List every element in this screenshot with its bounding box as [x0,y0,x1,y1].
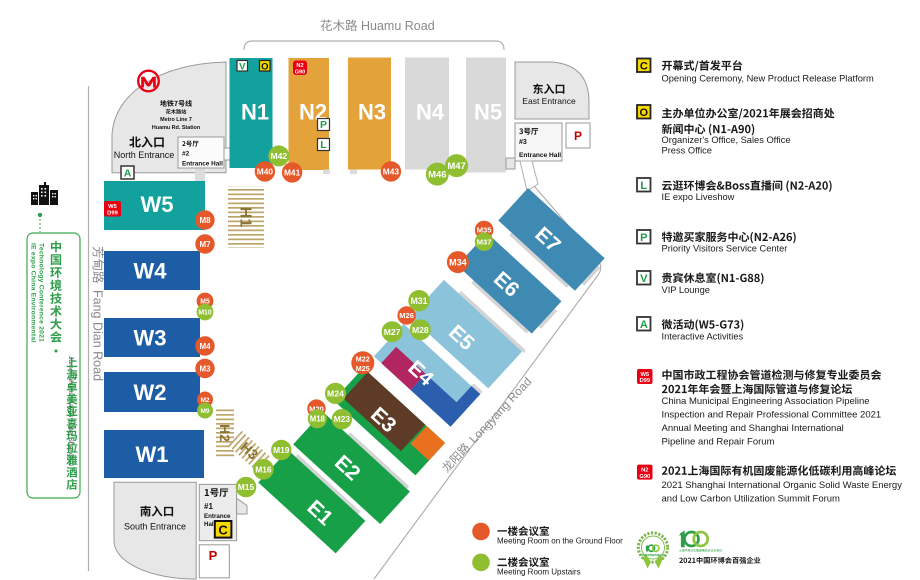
svg-text:H1: H1 [237,207,254,228]
svg-text:M42: M42 [270,151,287,161]
svg-text:M46: M46 [428,168,446,179]
svg-text:M10: M10 [198,309,212,316]
svg-text:H2: H2 [217,424,233,442]
svg-text:M40: M40 [257,166,274,176]
svg-text:M19: M19 [273,445,290,455]
svg-text:Entrance Hall: Entrance Hall [519,152,561,159]
svg-text:N2: N2 [641,467,648,473]
svg-text:Pipeline and Repair Forum: Pipeline and Repair Forum [662,437,775,448]
svg-text:M22: M22 [356,355,370,364]
svg-text:N2: N2 [296,63,303,69]
svg-text:Meeting Room on the Ground Flo: Meeting Room on the Ground Floor [497,537,623,546]
svg-text:Interactive Activities: Interactive Activities [662,332,744,342]
svg-text:D99: D99 [107,211,118,217]
svg-text:North Entrance: North Entrance [114,150,175,160]
svg-text:#1: #1 [204,502,213,511]
svg-text:Meeting Room Upstairs: Meeting Room Upstairs [497,568,581,577]
svg-text:M23: M23 [334,414,351,424]
svg-text:P: P [574,129,582,143]
svg-text:M26: M26 [399,311,414,320]
svg-text:Metro Line 7: Metro Line 7 [160,117,192,123]
svg-text:M25: M25 [356,364,370,373]
svg-text:M15: M15 [238,482,255,492]
svg-text:Annual Meeting and Shanghai In: Annual Meeting and Shanghai Internationa… [662,423,844,434]
svg-text:A: A [124,168,132,180]
svg-text:M16: M16 [255,464,272,474]
svg-text:P: P [320,119,327,131]
svg-text:G90: G90 [295,70,306,76]
svg-text:IE expo China Environmental: IE expo China Environmental [30,243,37,342]
svg-text:Entrance: Entrance [204,513,231,520]
svg-text:M31: M31 [410,296,427,306]
svg-text:China Municipal Engineering As: China Municipal Engineering Association … [662,396,870,407]
svg-text:L: L [320,139,327,151]
svg-text:VIP Lounge: VIP Lounge [662,285,710,295]
svg-text:M3: M3 [199,364,211,373]
svg-text:M47: M47 [447,160,465,171]
svg-text:#3: #3 [519,139,527,146]
svg-text:V: V [239,61,246,72]
svg-text:P: P [640,232,647,244]
svg-text:N5: N5 [474,100,502,125]
svg-text:L: L [640,180,647,192]
svg-text:W5: W5 [141,192,174,217]
svg-text:Opening Ceremony, New Product: Opening Ceremony, New Product Release Pl… [662,74,874,84]
svg-text:M18: M18 [310,415,326,424]
svg-text:M4: M4 [199,342,211,351]
svg-text:N4: N4 [416,100,445,125]
svg-text:Press Office: Press Office [662,145,712,155]
svg-text:O: O [640,107,649,119]
svg-text:M43: M43 [383,166,400,176]
svg-text:N3: N3 [358,100,386,125]
svg-text:W3: W3 [134,326,167,351]
svg-text:South Entrance: South Entrance [124,522,186,532]
svg-text:2021 Shanghai International Or: 2021 Shanghai International Organic Soli… [662,480,903,491]
svg-text:V: V [640,273,648,285]
svg-text:W5: W5 [108,204,117,210]
svg-text:M41: M41 [284,167,301,177]
svg-text:C: C [640,60,648,72]
svg-text:Inspection and Repair Professi: Inspection and Repair Professional Commi… [662,409,882,420]
svg-text:Organizer's Office, Sales Offi: Organizer's Office, Sales Office [662,135,791,145]
svg-text:M9: M9 [200,408,209,415]
svg-text:M24: M24 [327,389,344,399]
svg-text:W4: W4 [134,259,168,284]
svg-text:#2: #2 [182,151,190,158]
svg-text:Technology Conference 2021: Technology Conference 2021 [38,243,45,342]
svg-text:C: C [218,523,228,538]
svg-text:IE expo Liveshow: IE expo Liveshow [662,192,735,202]
svg-text:East Entrance: East Entrance [522,96,576,106]
svg-text:P: P [209,548,218,563]
svg-text:M27: M27 [384,327,401,337]
svg-text:M34: M34 [449,257,467,267]
svg-text:A: A [640,319,648,331]
svg-text:Huamu Rd. Station: Huamu Rd. Station [152,125,200,131]
svg-text:O: O [261,61,268,72]
svg-text:G90: G90 [639,474,650,480]
svg-text:M7: M7 [199,240,211,249]
svg-text:Fang Dian Road: Fang Dian Road [91,290,105,381]
svg-text:W2: W2 [134,380,167,405]
svg-text:M28: M28 [412,325,429,335]
svg-text:D99: D99 [639,378,650,384]
svg-text:W1: W1 [136,442,169,467]
svg-text:W5: W5 [640,372,649,378]
svg-text:and Low Carbon Utilization Sum: and Low Carbon Utilization Summit Forum [662,494,841,505]
svg-text:Huamu Road: Huamu Road [361,19,435,33]
svg-text:M37: M37 [477,237,492,246]
svg-text:Entrance Hall: Entrance Hall [182,161,223,168]
svg-text:N1: N1 [241,100,269,125]
svg-text:Priority Visitors Service Cent: Priority Visitors Service Center [662,243,788,253]
svg-text:M8: M8 [199,216,211,225]
